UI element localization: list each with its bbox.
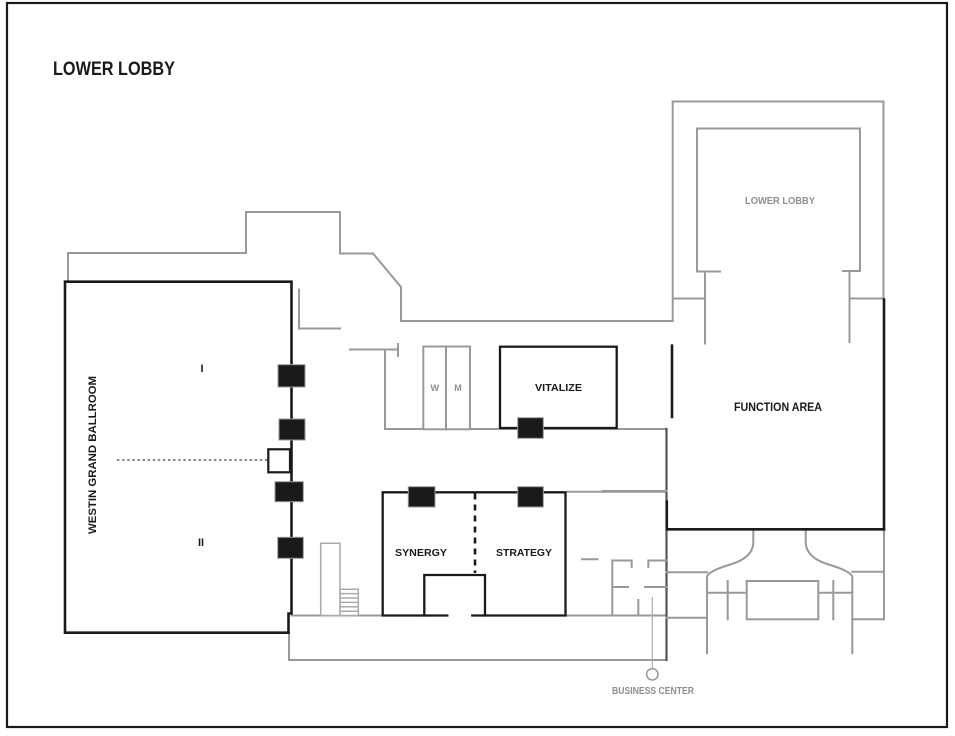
stairs-landing <box>321 543 340 615</box>
door-strategy <box>518 487 544 507</box>
door-synergy <box>408 487 435 507</box>
door-vitalize <box>518 418 544 439</box>
door-ballroom-2 <box>279 419 305 440</box>
ballroom-label: WESTIN GRAND BALLROOM <box>87 376 99 534</box>
door-ballroom-4 <box>278 537 304 558</box>
callout-circle <box>647 669 658 680</box>
door-ballroom-open <box>268 449 290 472</box>
lower-lobby-room-label: LOWER LOBBY <box>745 195 815 207</box>
entrance-feature <box>747 581 819 619</box>
strategy-label: STRATEGY <box>496 547 552 559</box>
ballroom-section-i-label: I <box>200 363 203 375</box>
ballroom-section-ii-label: II <box>198 537 204 549</box>
floor-plan: LOWER LOBBY LOWER LOBBY FUNCTION AREA VI… <box>0 0 955 736</box>
business-center-label: BUSINESS CENTER <box>612 686 695 697</box>
vitalize-label: VITALIZE <box>535 382 582 394</box>
page-title: LOWER LOBBY <box>53 58 175 80</box>
function-area-label: FUNCTION AREA <box>734 402 822 414</box>
door-ballroom-1 <box>278 365 305 387</box>
restroom-women-label: W <box>431 383 440 393</box>
door-ballroom-3 <box>275 482 303 502</box>
floor-plan-page: LOWER LOBBY LOWER LOBBY FUNCTION AREA VI… <box>0 0 955 736</box>
restroom-men-label: M <box>454 383 462 393</box>
synergy-label: SYNERGY <box>395 547 447 559</box>
